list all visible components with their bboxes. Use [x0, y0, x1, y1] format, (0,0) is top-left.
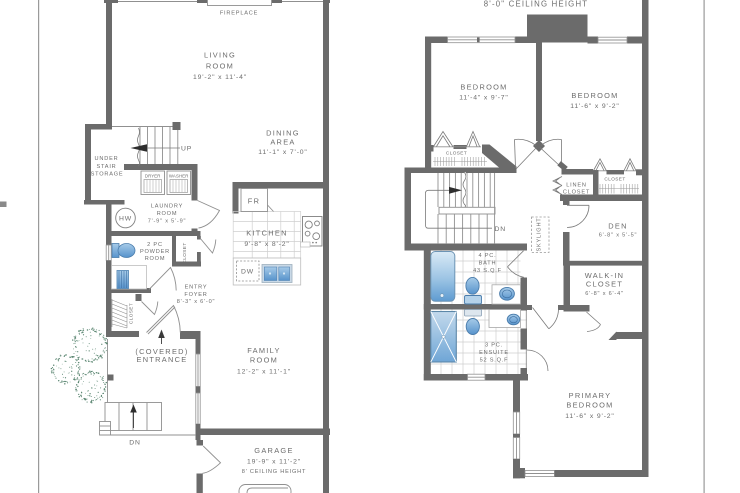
- svg-text:STORAGE: STORAGE: [91, 172, 124, 178]
- svg-text:GARAGE: GARAGE: [254, 446, 293, 455]
- svg-text:UP: UP: [181, 146, 192, 153]
- svg-text:DINING: DINING: [266, 129, 300, 138]
- svg-text:19'-2" x 11'-4": 19'-2" x 11'-4": [193, 74, 247, 81]
- svg-text:ROOM: ROOM: [206, 62, 234, 71]
- svg-text:WASHER: WASHER: [169, 174, 189, 179]
- svg-text:ENTRY: ENTRY: [185, 285, 208, 291]
- svg-text:HW: HW: [119, 216, 132, 223]
- svg-text:2 PC: 2 PC: [147, 242, 163, 248]
- svg-text:11'-1" x 7'-0": 11'-1" x 7'-0": [258, 149, 307, 156]
- svg-text:CLOSET: CLOSET: [129, 303, 134, 324]
- svg-text:6'-8" x 6'-4": 6'-8" x 6'-4": [585, 291, 624, 297]
- svg-text:BEDROOM: BEDROOM: [566, 401, 613, 410]
- svg-text:9'-8" x 8'-2": 9'-8" x 8'-2": [244, 241, 289, 248]
- svg-text:8' CEILING HEIGHT: 8' CEILING HEIGHT: [242, 469, 306, 475]
- svg-text:DEN: DEN: [608, 222, 628, 231]
- svg-text:FOYER: FOYER: [184, 292, 207, 298]
- svg-text:6'-8" x 5'-5": 6'-8" x 5'-5": [599, 233, 638, 239]
- svg-text:FR: FR: [248, 197, 260, 206]
- svg-text:19'-9" x 11'-2": 19'-9" x 11'-2": [247, 459, 301, 466]
- svg-text:BEDROOM: BEDROOM: [571, 91, 618, 100]
- svg-text:LINEN: LINEN: [566, 183, 586, 189]
- svg-text:11'-6" x 9'-2": 11'-6" x 9'-2": [565, 413, 614, 420]
- svg-text:CLOSET: CLOSET: [604, 177, 625, 182]
- svg-text:12'-2" x 11'-1": 12'-2" x 11'-1": [237, 369, 291, 376]
- svg-text:CLOSET: CLOSET: [446, 151, 467, 156]
- svg-text:7'-9" x 5'-9": 7'-9" x 5'-9": [148, 219, 187, 225]
- svg-text:STAIR: STAIR: [96, 164, 116, 170]
- svg-text:POWDER: POWDER: [140, 249, 170, 255]
- svg-text:8'-3" x 6'-0": 8'-3" x 6'-0": [177, 299, 216, 305]
- svg-text:AREA: AREA: [270, 138, 295, 147]
- svg-text:DW: DW: [241, 269, 254, 276]
- svg-text:FIREPLACE: FIREPLACE: [220, 11, 258, 17]
- svg-text:ROOM: ROOM: [157, 211, 178, 217]
- svg-text:LAUNDRY: LAUNDRY: [151, 204, 183, 210]
- svg-text:ENSUITE: ENSUITE: [479, 350, 509, 356]
- svg-text:SKYLIGHT: SKYLIGHT: [537, 217, 543, 251]
- svg-text:3 PC.: 3 PC.: [485, 343, 503, 349]
- svg-text:52 S.Q.F: 52 S.Q.F: [480, 358, 509, 364]
- svg-text:UNDER: UNDER: [95, 156, 119, 162]
- svg-text:KITCHEN: KITCHEN: [246, 229, 288, 238]
- svg-text:ROOM: ROOM: [250, 356, 278, 365]
- svg-text:8'-0" CEILING HEIGHT: 8'-0" CEILING HEIGHT: [484, 0, 589, 9]
- svg-text:11'-4" x 9'-7": 11'-4" x 9'-7": [459, 95, 508, 102]
- svg-text:DN: DN: [129, 440, 141, 447]
- svg-text:DRYER: DRYER: [145, 174, 161, 179]
- svg-text:4 PC.: 4 PC.: [479, 253, 497, 259]
- svg-text:CLOSET: CLOSET: [182, 242, 187, 263]
- svg-text:BEDROOM: BEDROOM: [460, 83, 507, 92]
- svg-text:ENTRANCE: ENTRANCE: [136, 355, 187, 364]
- svg-text:BATH: BATH: [479, 261, 497, 267]
- svg-text:ROOM: ROOM: [145, 256, 166, 262]
- svg-text:PRIMARY: PRIMARY: [569, 391, 612, 400]
- svg-text:CLOSET: CLOSET: [563, 190, 590, 196]
- svg-text:FAMILY: FAMILY: [247, 346, 281, 355]
- svg-text:DN: DN: [495, 226, 507, 233]
- svg-text:11'-6" x 9'-2": 11'-6" x 9'-2": [570, 103, 619, 110]
- svg-text:CLOSET: CLOSET: [586, 280, 623, 289]
- svg-text:LIVING: LIVING: [204, 51, 236, 60]
- svg-text:43 S.Q.F: 43 S.Q.F: [473, 268, 502, 274]
